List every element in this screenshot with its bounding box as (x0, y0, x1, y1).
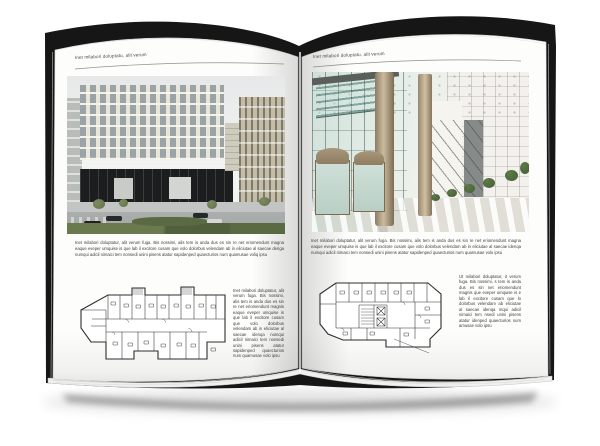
right-photo-caption: Inet milabori doluptatur, alit verum fug… (311, 238, 521, 255)
plant-shape (447, 189, 457, 197)
building-mid-band (80, 157, 224, 170)
stair-railing (425, 120, 484, 197)
storefront-panel (114, 178, 134, 199)
book-mockup-stage: Inet milabori doluptatu, alit verum Inet… (0, 0, 600, 446)
revolving-door-canopy (316, 148, 350, 164)
plant-shape (520, 162, 529, 174)
background-building (225, 123, 239, 170)
revolving-door-canopy (354, 151, 384, 165)
tree-shape (207, 200, 217, 209)
lobby-column (418, 74, 432, 216)
revolving-door (315, 160, 350, 215)
interior-photo (312, 72, 529, 232)
revolving-door (353, 162, 384, 212)
left-plan-side-text: Inet milabori doluptatur, alit verum fug… (233, 288, 284, 359)
exterior-photo (67, 76, 285, 234)
book-shadow (42, 391, 558, 413)
storefront-panel (169, 177, 192, 199)
car-shape (106, 216, 122, 221)
plan-outline (81, 287, 225, 359)
floor-plan-right (311, 276, 453, 354)
plant-shape (483, 178, 495, 188)
right-plan-side-text: Ut milabori doluptatur, it verum fuga. B… (459, 274, 521, 329)
plant-shape (431, 194, 440, 201)
building-upper-facade (80, 85, 224, 159)
tree-shape (93, 199, 105, 209)
plant-shape (505, 170, 518, 181)
beige-building (239, 97, 285, 204)
floor-plan-left (77, 283, 229, 363)
hedge (132, 217, 206, 226)
left-photo-caption: Inet milabori doluptatur, alit verum fug… (75, 240, 284, 257)
plant-shape (464, 184, 475, 193)
tree-shape (259, 197, 270, 206)
